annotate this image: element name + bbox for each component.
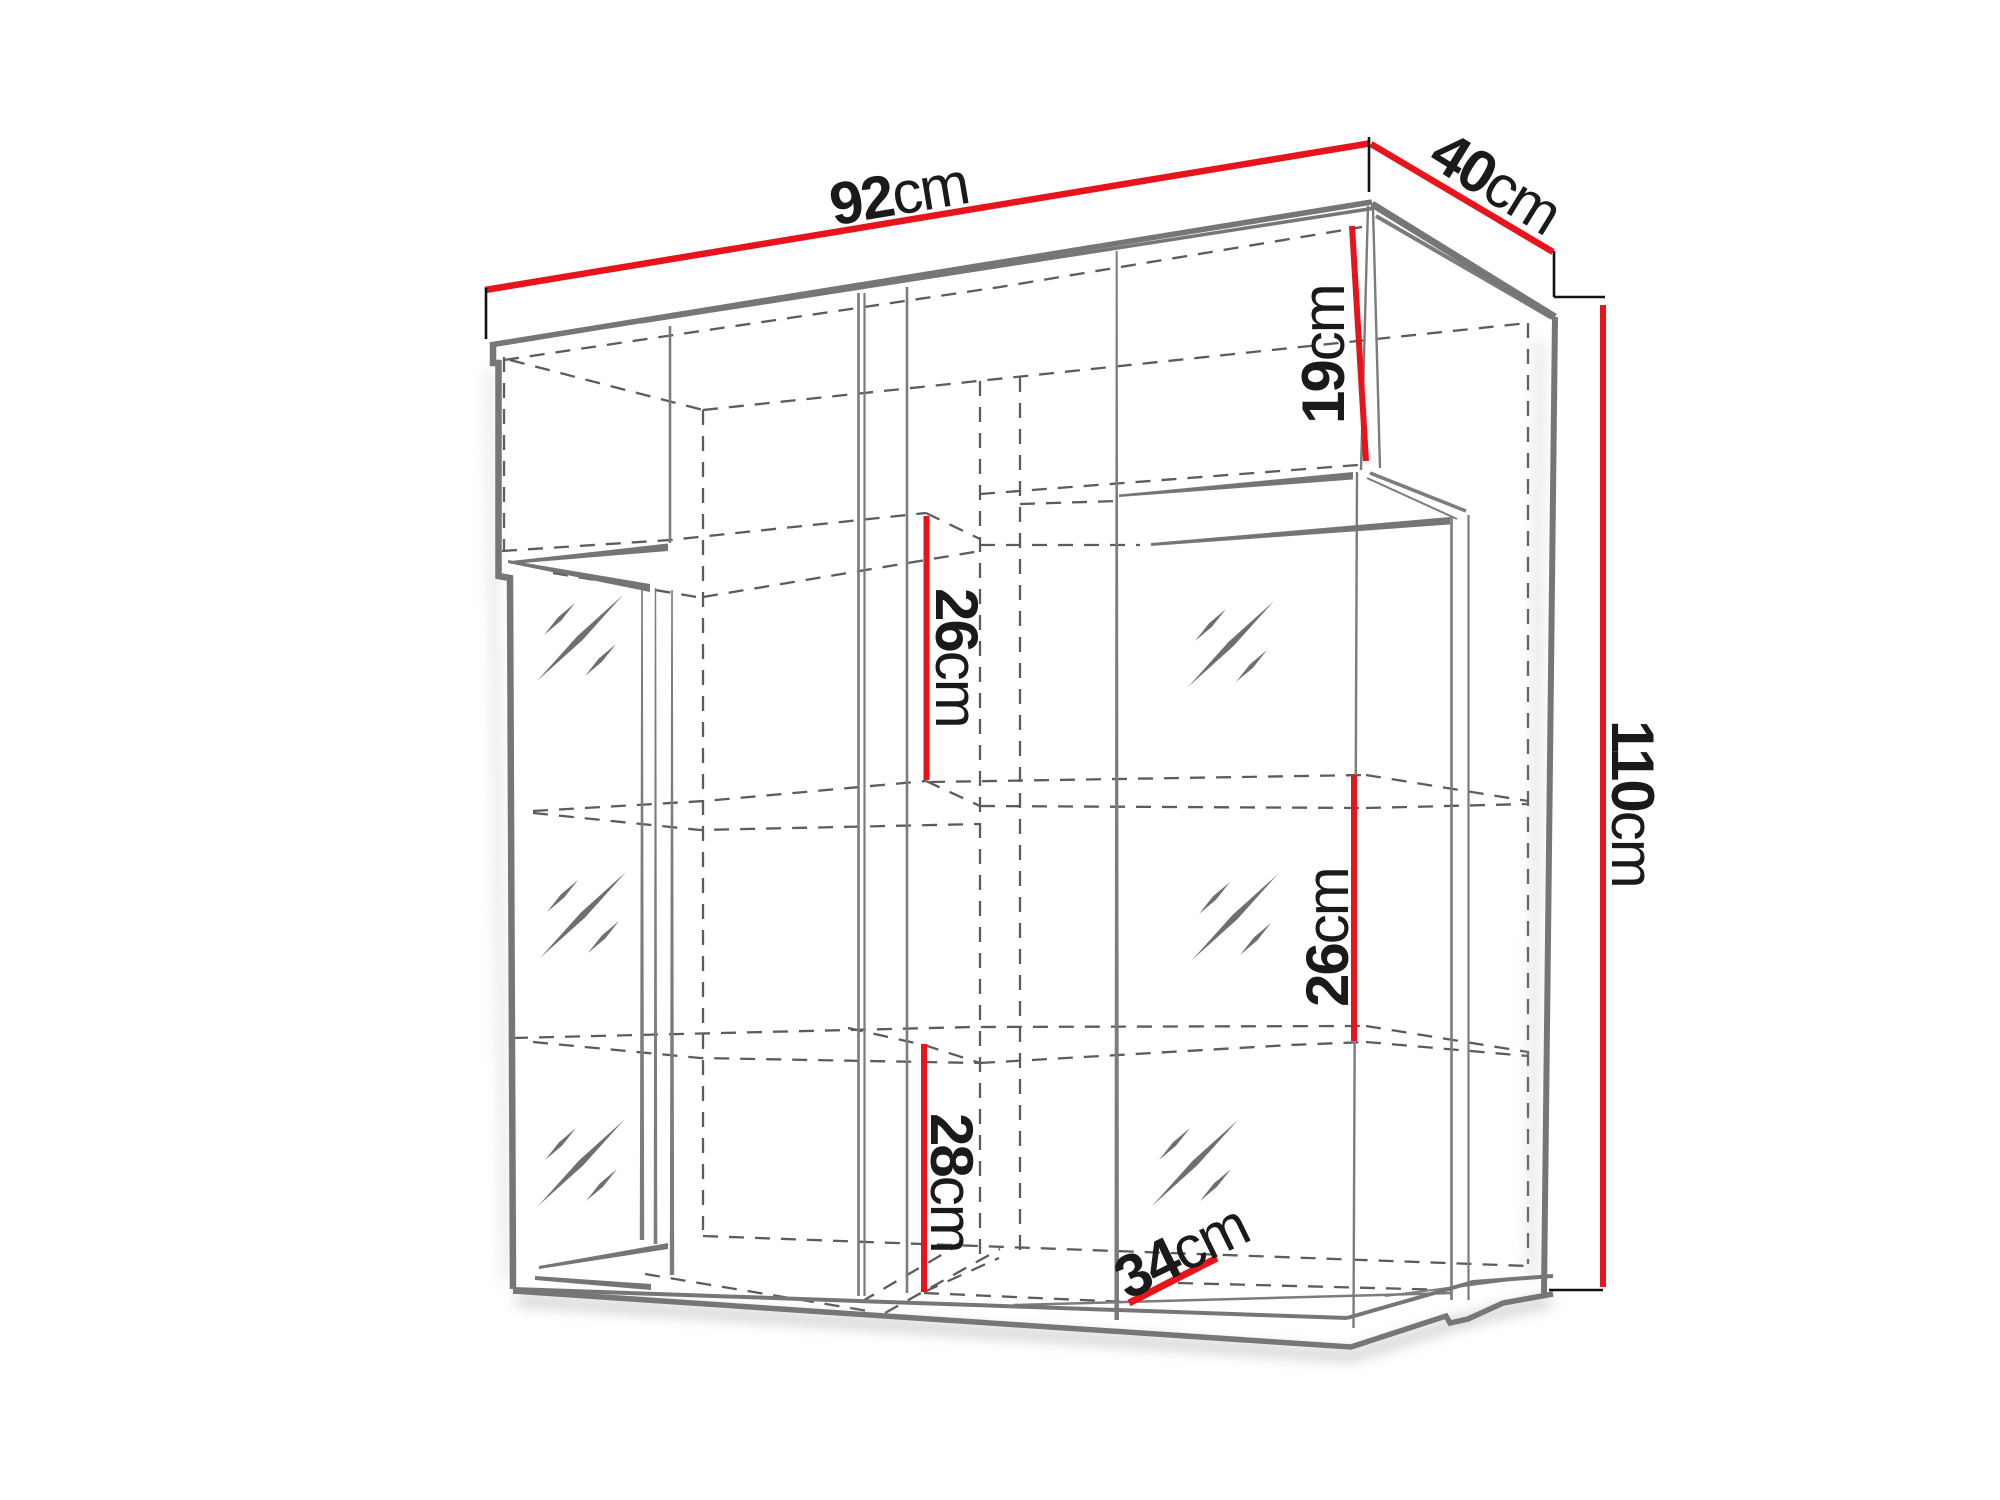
svg-text:28cm: 28cm — [918, 1113, 985, 1252]
svg-text:110cm: 110cm — [1599, 720, 1666, 887]
svg-text:26cm: 26cm — [1294, 868, 1361, 1007]
svg-text:19cm: 19cm — [1290, 285, 1357, 424]
svg-text:26cm: 26cm — [923, 588, 990, 727]
